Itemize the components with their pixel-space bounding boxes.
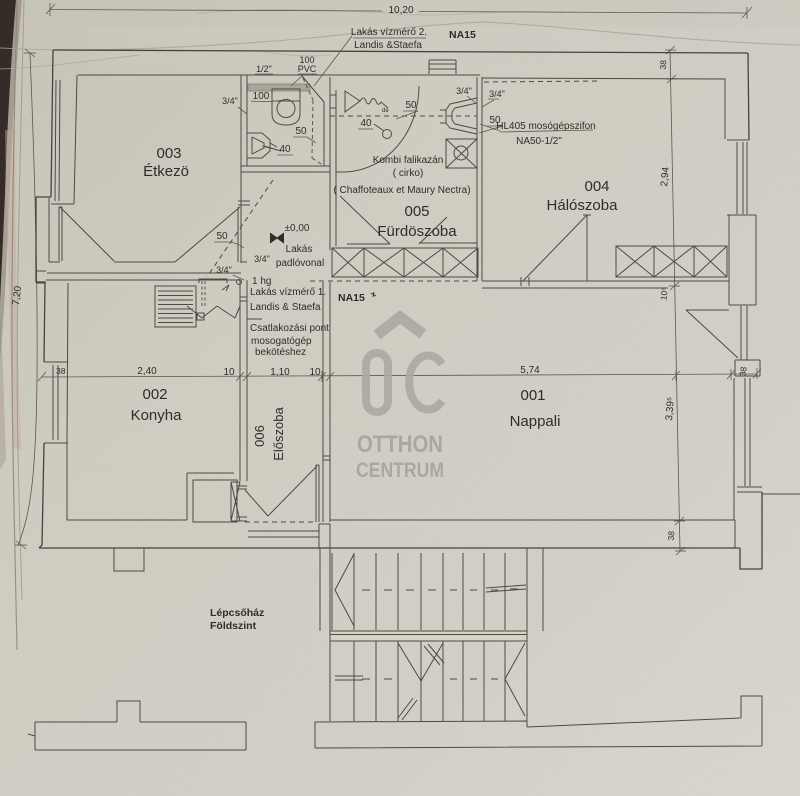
- svg-text:005: 005: [404, 203, 429, 220]
- svg-text:Étkezö: Étkezö: [143, 163, 189, 180]
- svg-text:2,40: 2,40: [137, 366, 157, 377]
- svg-text:PVC: PVC: [298, 64, 317, 74]
- svg-text:Lépcsőház: Lépcsőház: [210, 607, 264, 619]
- svg-text:Földszint: Földszint: [210, 620, 257, 632]
- svg-text:003: 003: [156, 145, 181, 162]
- svg-text:NA50-1/2": NA50-1/2": [516, 136, 562, 147]
- svg-text:3/4": 3/4": [254, 254, 270, 264]
- svg-text:Lakás: Lakás: [286, 244, 313, 255]
- svg-text:3,39⁵: 3,39⁵: [664, 397, 677, 421]
- svg-text:Konyha: Konyha: [131, 407, 183, 424]
- svg-text:Kombi falikazán: Kombi falikazán: [373, 155, 444, 166]
- svg-text:3/4": 3/4": [222, 96, 238, 106]
- svg-text:±0,00: ±0,00: [285, 223, 310, 234]
- svg-text:38: 38: [56, 366, 66, 376]
- svg-text:38: 38: [666, 530, 677, 541]
- svg-text:3/4": 3/4": [216, 265, 232, 275]
- svg-text:padlóvonal: padlóvonal: [276, 258, 324, 269]
- svg-text:3/4": 3/4": [489, 89, 505, 99]
- svg-text:38: 38: [737, 366, 749, 377]
- svg-text:1/2": 1/2": [256, 64, 272, 74]
- svg-text:50: 50: [405, 100, 417, 111]
- svg-text:5,74: 5,74: [520, 365, 540, 376]
- svg-text:NA15: NA15: [449, 29, 476, 41]
- svg-text:10: 10: [309, 367, 321, 378]
- svg-text:de: de: [382, 108, 389, 114]
- svg-text:40: 40: [360, 118, 372, 129]
- svg-text:Fürdöszoba: Fürdöszoba: [377, 223, 457, 240]
- svg-text:40: 40: [279, 144, 291, 155]
- svg-text:002: 002: [142, 386, 167, 403]
- svg-text:NA15: NA15: [338, 292, 365, 304]
- svg-text:004: 004: [584, 178, 609, 195]
- svg-text:2,94: 2,94: [659, 166, 672, 187]
- svg-text:10: 10: [223, 367, 235, 378]
- svg-text:Lakás vízmérő 2.: Lakás vízmérő 2.: [351, 27, 427, 38]
- svg-text:Hálószoba: Hálószoba: [547, 197, 619, 214]
- svg-text:Lakás vízmérő 1.: Lakás vízmérő 1.: [250, 287, 326, 298]
- svg-text:100: 100: [253, 91, 270, 102]
- svg-text:CENTRUM: CENTRUM: [356, 459, 444, 482]
- svg-text:001: 001: [520, 387, 545, 404]
- svg-text:10⁵: 10⁵: [658, 287, 669, 301]
- svg-text:Nappali: Nappali: [510, 413, 561, 430]
- svg-text:3/4": 3/4": [456, 86, 472, 96]
- svg-text:OTTHON: OTTHON: [357, 431, 443, 458]
- svg-text:Landis &Staefa: Landis &Staefa: [354, 40, 422, 51]
- svg-text:1,10: 1,10: [270, 367, 290, 378]
- svg-text:Landis & Staefa: Landis & Staefa: [250, 302, 321, 313]
- svg-text:bekötéshez: bekötéshez: [255, 347, 306, 358]
- svg-text:Csatlakozási pont: Csatlakozási pont: [250, 323, 329, 334]
- svg-text:50: 50: [216, 231, 228, 242]
- svg-text:mosogatógép: mosogatógép: [251, 336, 312, 347]
- svg-text:( Chaffoteaux et Maury Nectra): ( Chaffoteaux et Maury Nectra): [333, 185, 470, 196]
- svg-text:50: 50: [295, 126, 307, 137]
- svg-text:( cirko): ( cirko): [393, 168, 424, 179]
- svg-text:38: 38: [658, 59, 669, 70]
- svg-text:10,20: 10,20: [388, 5, 413, 16]
- svg-text:Előszoba: Előszoba: [271, 406, 286, 460]
- svg-text:1 hg: 1 hg: [252, 276, 271, 287]
- svg-text:006: 006: [252, 425, 267, 447]
